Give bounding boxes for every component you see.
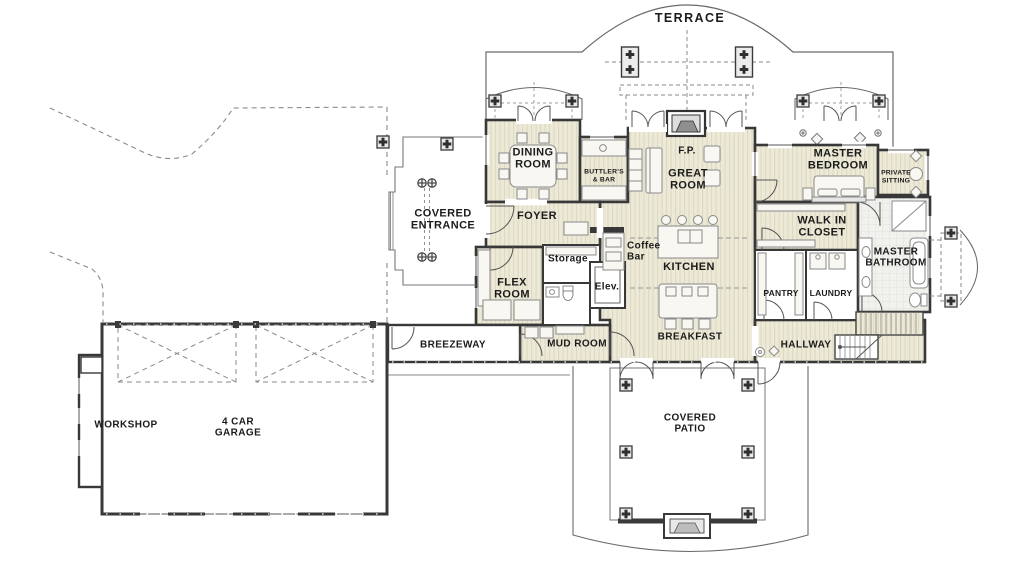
room-workshop-bay: [79, 355, 102, 487]
closet-shelf: [757, 240, 815, 247]
bay-column: [945, 295, 957, 307]
entrance-column-pair: [418, 179, 437, 188]
covered-entrance-structure: [389, 137, 486, 285]
room-breezeway: [388, 325, 520, 362]
bay-column: [945, 227, 957, 239]
master-porch: [795, 82, 888, 145]
flex-furniture: [483, 300, 511, 320]
armchair: [704, 170, 720, 186]
butler-counter: [582, 186, 626, 200]
storage-shelf: [546, 247, 596, 255]
mud-cubby: [540, 327, 553, 338]
elevator-cab: [595, 267, 620, 303]
site-column: [377, 136, 389, 148]
mud-cubby: [525, 327, 538, 338]
headboard: [812, 197, 866, 202]
floor-plan-page: TERRACE DINING ROOM BUTTLER'S & BAR F.P.…: [0, 0, 1024, 576]
nightstand: [803, 188, 812, 200]
pantry-shelf: [758, 253, 766, 315]
terrace-column: [622, 47, 639, 77]
armchair: [704, 146, 720, 162]
sitting-chair: [910, 168, 923, 181]
room-garage: [102, 324, 387, 514]
toilet: [910, 293, 921, 307]
floor-plan-drawing: [0, 0, 1024, 576]
mud-bench: [556, 326, 584, 334]
covered-patio-structure: [573, 366, 808, 552]
terrace-column: [736, 47, 753, 77]
entrance-column-pair: [418, 253, 437, 262]
flex-closet: [478, 250, 490, 306]
foyer-builtin: [564, 222, 588, 235]
closet-shelf: [757, 204, 845, 211]
butler-sink: [600, 145, 607, 152]
sofa: [646, 148, 662, 193]
dining-table: [510, 145, 556, 187]
site-column: [441, 138, 453, 150]
fireplace: [667, 111, 705, 136]
dining-porch: [486, 82, 582, 120]
nightstand: [866, 188, 875, 200]
pantry-shelf: [795, 253, 803, 315]
coffee-bar-wall: [590, 227, 624, 233]
flex-furniture: [514, 300, 540, 320]
master-bath-bay: [930, 230, 978, 305]
garage-closet: [81, 357, 102, 373]
